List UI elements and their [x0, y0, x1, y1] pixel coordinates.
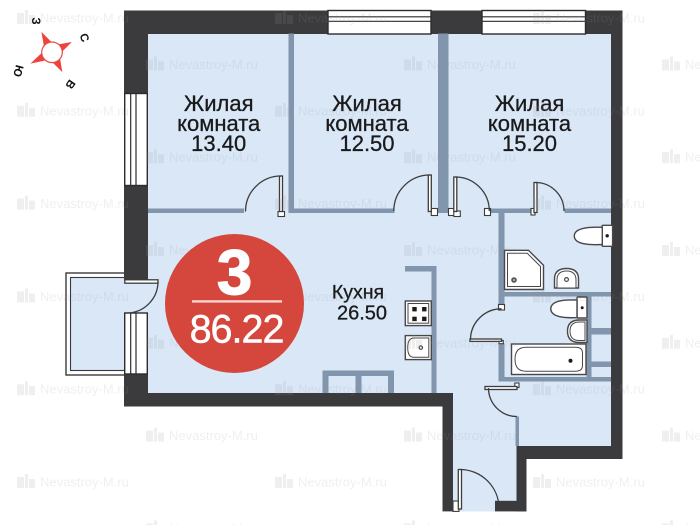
svg-text:3: 3: [217, 236, 253, 308]
svg-text:12.50: 12.50: [339, 131, 394, 156]
svg-text:З: З: [29, 17, 41, 24]
svg-text:26.50: 26.50: [337, 303, 387, 325]
svg-text:86.22: 86.22: [190, 308, 284, 352]
